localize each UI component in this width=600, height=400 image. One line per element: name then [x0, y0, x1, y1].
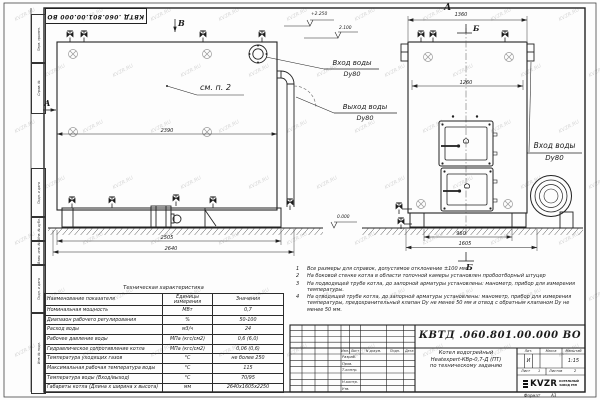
company-name-line2: ЗАВОД РЭП [559, 384, 579, 387]
margin-label: Подп. и дата [37, 278, 41, 300]
spec-cell: °С [163, 364, 213, 374]
spec-cell: 0,06 (0,6) [213, 344, 284, 354]
spec-row: Гидравлическое сопротивление котлаМПа (к… [45, 344, 284, 354]
spec-cell: 2640х1605х2250 [213, 383, 284, 393]
top-stamp-text: КВТД .060.801.00.000 ВО [47, 13, 144, 20]
spec-cell: 24 [213, 325, 284, 335]
elevation-mid: 2.100 [339, 26, 352, 31]
tb-col-izm: Изм. [340, 349, 350, 353]
spec-cell: 115 [213, 364, 284, 374]
spec-col-header: Значения [213, 294, 284, 306]
spec-cell: Номинальная мощность [45, 306, 163, 316]
spec-row: Температура воды (Вход/выход)°С70/95 [45, 373, 284, 383]
spec-cell: % [163, 315, 213, 325]
note-number: 4 [296, 294, 307, 313]
tb-sheets-value: 2 [574, 369, 576, 373]
side-view-linework [43, 19, 397, 256]
spec-cell: Максимальная рабочая температура воды [45, 364, 163, 374]
format-label: Формат [524, 393, 540, 398]
elevation-ground: 0.000 [337, 215, 350, 220]
spec-row: Габариты котла (Длина х ширина х высота)… [45, 383, 284, 393]
tb-col-ndoc: N докум. [361, 349, 387, 353]
dimension-1260: 1260 [453, 80, 479, 86]
section-label-a-side: А [44, 98, 51, 108]
spec-cell: Диапазон рабочего регулирования [45, 315, 163, 325]
format-value: А3 [551, 393, 556, 398]
spec-cell: МВт [163, 306, 213, 316]
dimension-2390: 2390 [152, 128, 182, 134]
note-text: Все размеры для справок, допустимое откл… [307, 266, 468, 272]
water-inlet-dn-front: Dy80 [527, 155, 582, 163]
spec-cell: м3/ч [163, 325, 213, 335]
margin-label-box: Взам. инв. № [31, 240, 46, 266]
dimension-1360: 1360 [448, 12, 474, 18]
drawing-sheet: KVZR.RUKVZR.RUKVZR.RUKVZR.RUKVZR.RUKVZR.… [0, 0, 600, 400]
logo-bars-icon [523, 380, 528, 388]
tb-scale-value: 1:15 [562, 358, 585, 364]
note-number: 2 [296, 273, 307, 279]
note-item: 3На подводящей трубе котла, до запорной … [296, 281, 579, 294]
tb-row-nkontr: Н.контр. [342, 380, 358, 384]
tb-row-prov: Пров. [342, 362, 352, 366]
note-number: 1 [296, 266, 307, 272]
spec-cell: °С [163, 373, 213, 383]
tb-sheet-label: Лист [521, 369, 530, 373]
water-inlet-label-side: Вход воды [326, 59, 378, 67]
margin-label: Инв. № подл. [37, 342, 41, 364]
margin-label-box: Инв. № дубл. [31, 216, 46, 242]
water-inlet-dn-side: Dy80 [326, 71, 378, 78]
spec-cell: Температура уходящих газов [45, 354, 163, 364]
note-item: 2На боковой стенке котла в области топоч… [296, 273, 579, 279]
note-number: 3 [296, 281, 307, 294]
spec-header-row: Наименование показателя Единицы измерени… [45, 294, 284, 306]
spec-col-header: Единицы измерения [163, 294, 213, 306]
company-logo: KVZR КОТЕЛЬНЫЙ ЗАВОД РЭП [519, 377, 583, 391]
spec-cell: Расход воды [45, 325, 163, 335]
spec-cell: МПа (кгс/см2) [163, 344, 213, 354]
elevation-top: +2.250 [311, 12, 327, 17]
spec-cell: Габариты котла (Длина х ширина х высота) [45, 383, 163, 393]
tb-row-tkontr: Т.контр. [342, 368, 358, 372]
doc-name-line3: по техническому заданию [416, 363, 516, 369]
spec-cell: 0,6 (6,0) [213, 335, 284, 345]
tb-lit-header: Лит. [517, 349, 540, 353]
spec-cell: МПа (кгс/см2) [163, 335, 213, 345]
spec-row: Температура уходящих газов°Сне более 250 [45, 354, 284, 364]
margin-label-box: Подп. и дата [31, 168, 46, 218]
notes-list: 1Все размеры для справок, допустимое отк… [296, 266, 579, 314]
dimension-960: 960 [448, 231, 474, 237]
doc-name-line1: Котел водогрейный [416, 350, 516, 356]
margin-label: Инв. № дубл. [37, 218, 41, 240]
tb-row-utv: Утв. [342, 387, 350, 391]
note-text: На отводящей трубе котла, до запорной ар… [307, 294, 579, 313]
note-text: На боковой стенке котла в области топочн… [307, 273, 546, 279]
margin-label: Перв. примен. [37, 27, 41, 51]
tb-sheet-value: 1 [538, 369, 540, 373]
dimension-2640: 2640 [156, 246, 186, 252]
spec-row: Рабочее давление водыМПа (кгс/см2)0,6 (6… [45, 335, 284, 345]
spec-cell: Температура воды (Вход/выход) [45, 373, 163, 383]
spec-table-title: Техническая характеристика [44, 285, 283, 291]
spec-cell: не более 250 [213, 354, 284, 364]
spec-cell: 0,7 [213, 306, 284, 316]
margin-label: Взам. инв. № [37, 242, 41, 264]
note-item: 4На отводящей трубе котла, до запорной а… [296, 294, 579, 313]
spec-col-header: Наименование показателя [45, 294, 163, 306]
margin-label-box: Перв. примен. [31, 14, 46, 64]
section-label-b-top: Б [473, 24, 479, 33]
top-stamp-box: КВТД .060.801.00.000 ВО [45, 8, 147, 24]
spec-cell: Рабочее давление воды [45, 335, 163, 345]
spec-row: Расход водым3/ч24 [45, 325, 284, 335]
tb-lit-value: И [525, 358, 533, 364]
tb-mass-header: Масса [540, 349, 562, 353]
spec-cell: 50-100 [213, 315, 284, 325]
spec-cell: Гидравлическое сопротивление котла [45, 344, 163, 354]
dimension-1605: 1605 [452, 241, 478, 247]
water-inlet-label-front: Вход воды [527, 142, 582, 150]
dimension-2505: 2505 [152, 235, 182, 241]
tb-col-data: Дата [404, 349, 416, 353]
spec-table: Наименование показателя Единицы измерени… [44, 293, 284, 393]
note-text: На подводящей трубе котла, до запорной а… [307, 281, 579, 294]
spec-row: Диапазон рабочего регулирования%50-100 [45, 315, 284, 325]
spec-cell: °С [163, 354, 213, 364]
tb-col-podp: Подп. [387, 349, 404, 353]
spec-cell: 70/95 [213, 373, 284, 383]
note-item: 1Все размеры для справок, допустимое отк… [296, 266, 579, 272]
front-view-linework [362, 16, 583, 261]
tb-sheets-label: Листов [549, 369, 562, 373]
margin-label: Подп. и дата [37, 182, 41, 204]
spec-row: Максимальная рабочая температура воды°С1… [45, 364, 284, 374]
section-label-v: В [178, 18, 185, 28]
spec-row: Номинальная мощностьМВт0,7 [45, 306, 284, 316]
tb-col-list: Лист [350, 349, 361, 353]
water-outlet-label: Выход воды [334, 103, 396, 111]
see-note-ref: см. п. 2 [200, 84, 231, 93]
doc-number: КВТД .060.801.00.000 ВО [415, 330, 585, 341]
tb-row-razrab: Разраб. [342, 355, 356, 359]
water-outlet-dn: Dy80 [334, 115, 396, 122]
doc-name-line2: Heatexpert-КВр-0,7-Д (ПТ) [416, 357, 516, 363]
spec-cell: мм [163, 383, 213, 393]
margin-label: Справ. № [37, 80, 41, 96]
logo-text: KVZR [530, 379, 557, 389]
tb-scale-header: Масштаб [562, 349, 585, 353]
